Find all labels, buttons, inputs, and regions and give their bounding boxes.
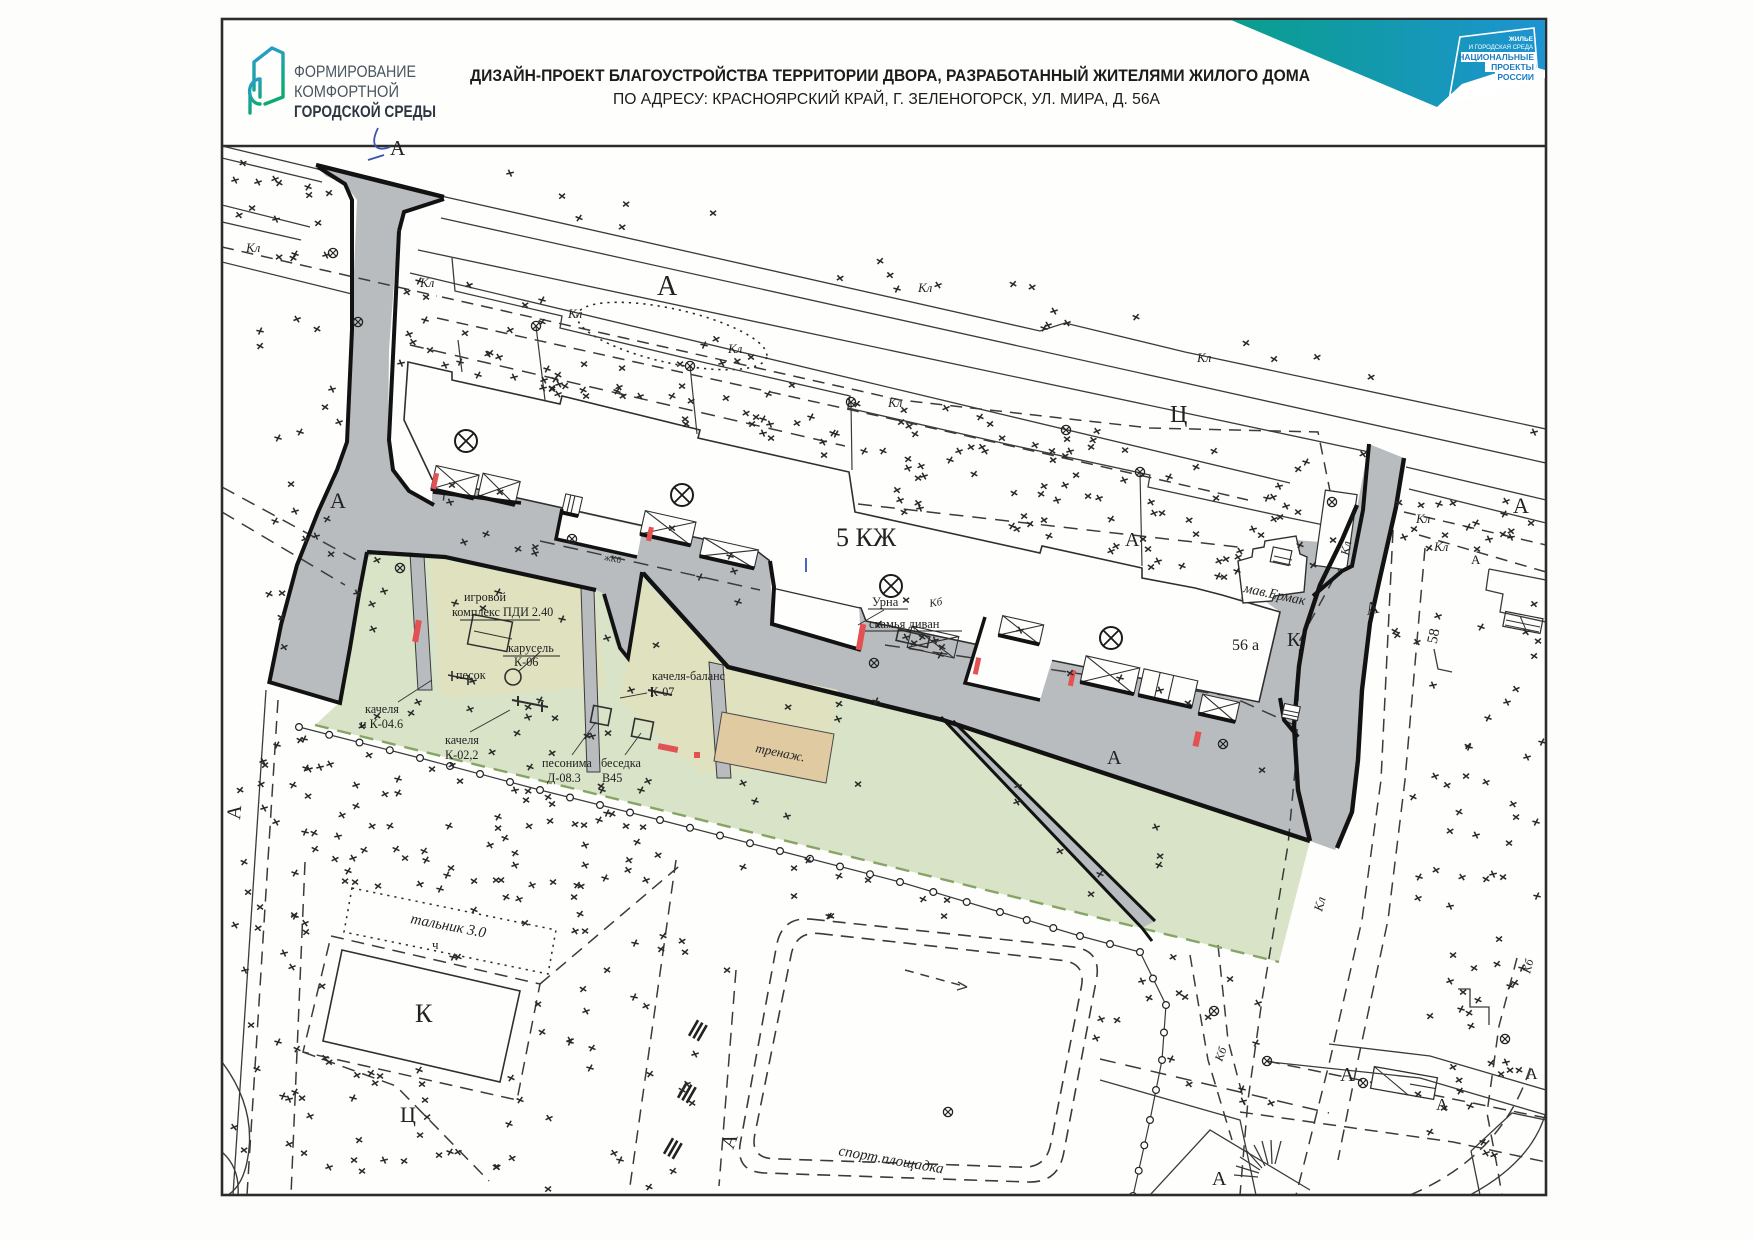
svg-text:А: А — [1125, 529, 1140, 551]
svg-text:ДИЗАЙН-ПРОЕКТ БЛАГОУСТРОЙСТВА: ДИЗАЙН-ПРОЕКТ БЛАГОУСТРОЙСТВА ТЕРРИТОРИИ… — [470, 66, 1310, 85]
svg-text:А: А — [1436, 1095, 1449, 1114]
svg-text:ФОРМИРОВАНИЕ: ФОРМИРОВАНИЕ — [294, 62, 416, 81]
svg-text:песок: песок — [456, 668, 486, 682]
svg-text:песонима: песонима — [542, 756, 592, 770]
svg-text:Кл: Кл — [567, 306, 583, 321]
svg-text:ЖИЛЬЕ: ЖИЛЬЕ — [1508, 36, 1534, 43]
svg-text:и К-04.6: и К-04.6 — [360, 717, 403, 731]
svg-text:А: А — [330, 488, 346, 513]
svg-text:56 а: 56 а — [1232, 637, 1259, 654]
svg-text:И ГОРОДСКАЯ СРЕДА: И ГОРОДСКАЯ СРЕДА — [1469, 45, 1533, 51]
svg-text:комплекс ПДИ 2.40: комплекс ПДИ 2.40 — [452, 605, 553, 619]
svg-text:НАЦИОНАЛЬНЫЕ: НАЦИОНАЛЬНЫЕ — [1458, 52, 1534, 62]
svg-text:Кл: Кл — [887, 395, 903, 410]
svg-text:5 КЖ: 5 КЖ — [836, 523, 897, 552]
svg-text:Кл: Кл — [1337, 540, 1354, 558]
svg-text:беседка: беседка — [601, 756, 641, 770]
svg-text:качеля-баланс: качеля-баланс — [652, 669, 726, 683]
svg-text:РОССИИ: РОССИИ — [1497, 72, 1534, 82]
svg-text:Кл: Кл — [727, 341, 743, 356]
svg-text:Кб: Кб — [927, 596, 943, 610]
svg-text:А: А — [1107, 747, 1122, 769]
svg-text:А: А — [1340, 1064, 1355, 1086]
svg-text:КОМФОРТНОЙ: КОМФОРТНОЙ — [294, 82, 399, 101]
svg-text:карусель: карусель — [508, 641, 554, 655]
svg-text:ПО АДРЕСУ: КРАСНОЯРСКИЙ КРАЙ,: ПО АДРЕСУ: КРАСНОЯРСКИЙ КРАЙ, Г. ЗЕЛЕНОГ… — [613, 90, 1161, 108]
svg-text:К: К — [415, 999, 433, 1028]
svg-text:качеля: качеля — [445, 733, 479, 747]
svg-text:В45: В45 — [602, 771, 622, 785]
svg-text:К: К — [1287, 629, 1301, 651]
svg-text:Ц: Ц — [400, 1102, 416, 1127]
svg-text:качеля: качеля — [365, 702, 399, 716]
svg-text:Кл: Кл — [1196, 350, 1212, 365]
svg-text:А: А — [390, 136, 406, 160]
svg-text:Ц: Ц — [1170, 402, 1187, 428]
svg-text:Кл: Кл — [245, 240, 261, 255]
svg-text:скамья диван: скамья диван — [869, 617, 940, 631]
svg-text:ч: ч — [432, 937, 439, 952]
svg-text:К-07: К-07 — [650, 685, 674, 699]
svg-text:А: А — [1526, 1066, 1538, 1083]
svg-text:А: А — [1212, 1168, 1227, 1190]
svg-text:Кл: Кл — [1433, 539, 1449, 554]
svg-text:игровой: игровой — [464, 590, 506, 604]
svg-text:Д-08.3: Д-08.3 — [547, 771, 581, 785]
svg-text:К-06: К-06 — [514, 655, 538, 669]
svg-text:А: А — [1513, 493, 1529, 518]
svg-text:ПРОЕКТЫ: ПРОЕКТЫ — [1491, 62, 1534, 72]
svg-text:А: А — [223, 804, 246, 821]
svg-text:А: А — [657, 271, 678, 302]
svg-text:Кл: Кл — [1415, 511, 1431, 526]
svg-text:Кл: Кл — [917, 280, 933, 295]
svg-text:А: А — [1471, 552, 1481, 567]
svg-text:Кл: Кл — [419, 275, 435, 290]
svg-text:К-02,2: К-02,2 — [445, 748, 479, 762]
svg-text:Урна: Урна — [872, 595, 899, 609]
svg-text:ГОРОДСКОЙ СРЕДЫ: ГОРОДСКОЙ СРЕДЫ — [294, 102, 436, 121]
